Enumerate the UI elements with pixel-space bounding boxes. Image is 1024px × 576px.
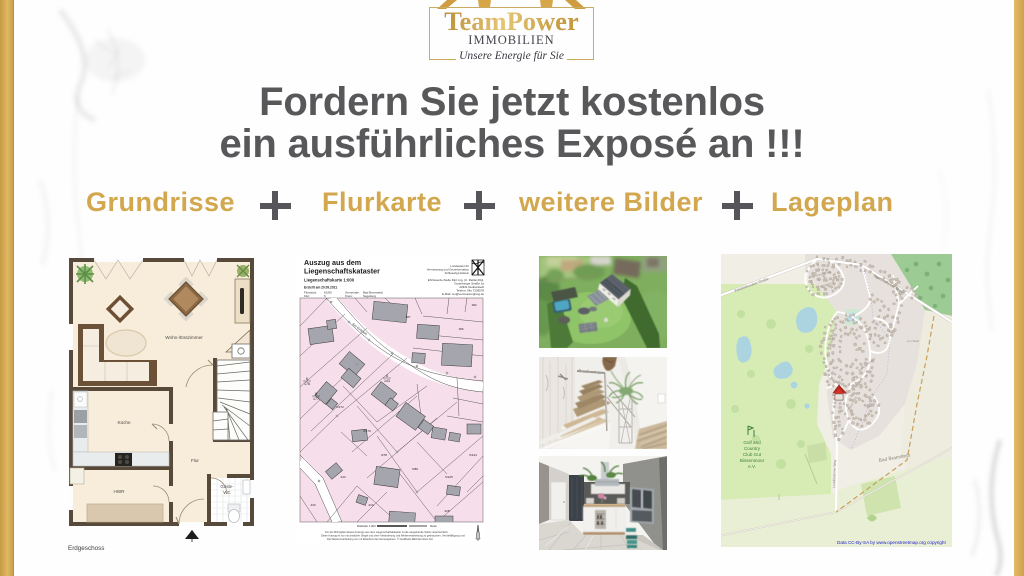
svg-text:187: 187 xyxy=(405,315,410,319)
svg-text:244: 244 xyxy=(340,475,345,479)
svg-text:176: 176 xyxy=(304,382,310,386)
svg-text:Gäste-: Gäste- xyxy=(220,484,234,489)
svg-text:HWR: HWR xyxy=(114,489,126,494)
svg-text:186: 186 xyxy=(458,327,463,331)
svg-text:233: 233 xyxy=(310,503,315,507)
svg-text:177: 177 xyxy=(313,397,319,401)
svg-text:Diese Auszug ist nur mit amtli: Diese Auszug ist nur mit amtlicher Siege… xyxy=(321,534,465,538)
svg-text:143: 143 xyxy=(384,379,390,383)
svg-text:6/144: 6/144 xyxy=(469,453,477,457)
svg-text:Liegenschaftskataster: Liegenschaftskataster xyxy=(304,267,380,276)
svg-text:Flur: Flur xyxy=(191,458,199,463)
svg-text:e.V.: e.V. xyxy=(748,464,756,469)
svg-text:6/170: 6/170 xyxy=(363,429,371,433)
svg-text:Bissenmoor: Bissenmoor xyxy=(740,458,765,463)
svg-text:E-Mail: mo@vermessunglung.de: E-Mail: mo@vermessunglung.de xyxy=(442,292,484,296)
svg-text:Erstellt am 20.09.2021: Erstellt am 20.09.2021 xyxy=(304,286,337,290)
svg-text:Erdgeschoss: Erdgeschoss xyxy=(68,545,104,552)
svg-text:219: 219 xyxy=(368,503,373,507)
svg-text:6: 6 xyxy=(386,374,388,378)
svg-text:Liegenschaftskarte 1:000: Liegenschaftskarte 1:000 xyxy=(304,278,355,283)
svg-text:6/125: 6/125 xyxy=(445,475,453,479)
svg-text:6/78: 6/78 xyxy=(381,453,387,457)
svg-text:228: 228 xyxy=(444,509,449,513)
svg-text:Kreis:: Kreis: xyxy=(345,294,353,298)
svg-text:Am Wald: Am Wald xyxy=(907,339,919,343)
svg-text:Die Weiterverarbeitung nur mit: Die Weiterverarbeitung nur mit Erlaubnis… xyxy=(327,537,433,541)
svg-text:Club Gut: Club Gut xyxy=(743,452,762,457)
svg-text:Meter: Meter xyxy=(430,524,437,528)
svg-text:Für die Richtigkeit dieses Aus: Für die Richtigkeit dieses Auszugs aus d… xyxy=(325,530,449,534)
svg-text:6/80: 6/80 xyxy=(412,467,418,471)
svg-text:Country: Country xyxy=(744,446,761,451)
svg-text:Küche: Küche xyxy=(117,420,130,425)
svg-text:Wohn-/Esszimmer: Wohn-/Esszimmer xyxy=(165,335,203,340)
svg-text:182: 182 xyxy=(471,303,476,307)
svg-text:Maßstab 1:000: Maßstab 1:000 xyxy=(357,524,376,528)
svg-text:6: 6 xyxy=(306,377,308,381)
svg-text:Schleswig-Holstein: Schleswig-Holstein xyxy=(445,271,470,275)
svg-text:Segeberg: Segeberg xyxy=(363,294,376,298)
svg-text:Data CC-By-SA by www.openstree: Data CC-By-SA by www.openstreetmap.org c… xyxy=(837,540,946,545)
svg-text:6: 6 xyxy=(315,392,317,396)
svg-text:Golf and: Golf and xyxy=(743,440,761,445)
svg-text:6/172: 6/172 xyxy=(336,405,344,409)
